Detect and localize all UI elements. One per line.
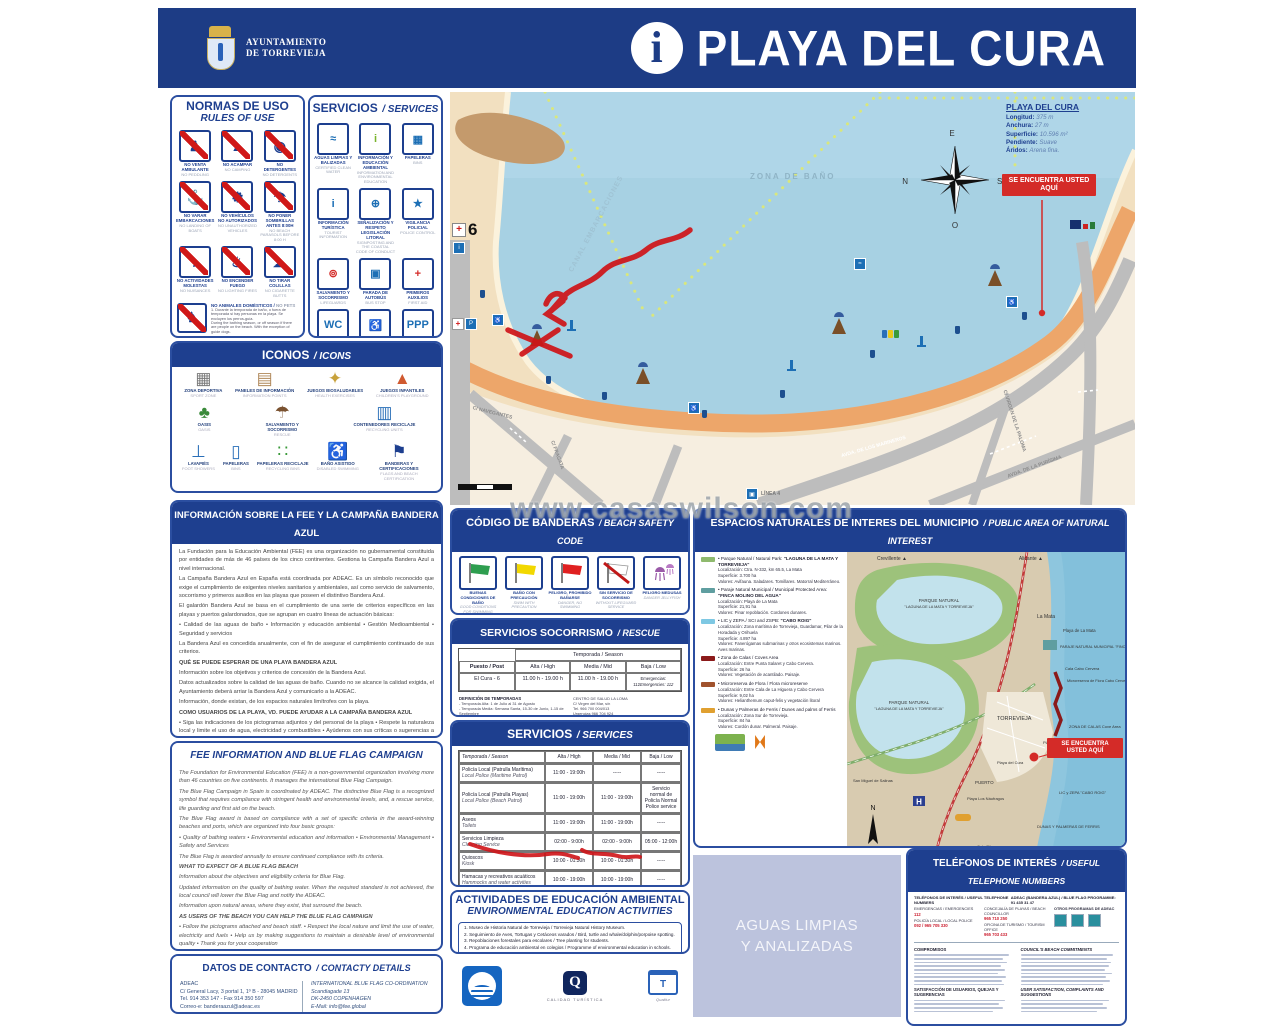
service-label-en: BUS STOP xyxy=(365,301,385,305)
flag-label-en: GOOD CONDITIONS FOR SWIMMING xyxy=(456,605,500,614)
legend-label-es: BANDERAS Y CERTIFICACIONES xyxy=(367,461,431,471)
activity-line: 5. Visitas escolares al Parque Natural /… xyxy=(464,952,676,954)
prohibition-icon: ♪ xyxy=(179,246,211,278)
activity-line: 4. Programa de educación ambiental en co… xyxy=(464,945,676,952)
prohibition-label-es: NO PONER SOMBRILLAS ANTES 8:00H xyxy=(260,214,299,229)
icons-legend-panel: ICONOS / ICONS ▦ ZONA DEPORTIVA SPORT ZO… xyxy=(170,341,443,493)
parking-map-icon: P xyxy=(465,318,477,330)
map-label: PARQUE NATURAL xyxy=(919,598,960,603)
legend-icon: ▥ xyxy=(376,404,392,421)
paragraph: Information upon natural areas, where th… xyxy=(179,902,434,910)
beach-number: 6 xyxy=(468,220,477,240)
first-aid-map-icon: + xyxy=(452,318,464,330)
map-label: DUNAS Y PALMERAS DE FERRIS xyxy=(1037,824,1100,829)
service-icon: ▦ xyxy=(402,123,434,155)
service-item: ♿ ACCESOS FÁCILES Y SEGUROS SAFE AND EAS… xyxy=(356,309,395,338)
beach-number-marker: + 6 xyxy=(452,220,477,240)
service-icon: i xyxy=(359,123,391,155)
service-item: i INFORMACIÓN TURÍSTICA TOURIST INFORMAT… xyxy=(313,188,352,254)
health-centre-line: GPS: 37°58'54"N - 0°40'29"W xyxy=(573,716,681,717)
red-flag-icon xyxy=(551,556,589,590)
paragraph: COMO USUARIOS DE LA PLAYA, VD. PUEDE AYU… xyxy=(179,709,434,717)
services-grid: ≈ AGUAS LIMPIAS Y BALIZADAS CERTIFIED CL… xyxy=(310,119,441,338)
flag-no-lifeguard: SIN SERVICIO DE SOCORRISMO WITHOUT LIFEG… xyxy=(594,556,638,614)
fee-info-en-body: The Foundation for Environmental Educati… xyxy=(172,765,441,951)
prohibition-item: ⚙ NO VEHÍCULOS NO AUTORIZADOS NO UNAUTHO… xyxy=(218,181,257,242)
services-icons-panel: SERVICIOS / SERVICES ≈ AGUAS LIMPIAS Y B… xyxy=(308,95,443,338)
lifeguard-tower-icon xyxy=(530,330,544,346)
bin-icon xyxy=(1022,312,1027,320)
municipality-name: AYUNTAMIENTO DE TORREVIEJA xyxy=(246,37,326,60)
paragraph: La Fundación para la Educación Ambiental… xyxy=(179,548,434,573)
you-are-here-badge: SE ENCUENTRA USTED AQUÍ xyxy=(1002,174,1096,196)
beach-stat: Pendiente: Suave xyxy=(1006,139,1131,147)
service-icon: ♿ xyxy=(359,309,391,338)
lifeguard-tower-icon xyxy=(988,270,1002,286)
beach-information-board: AYUNTAMIENTO DE TORREVIEJA i PLAYA DEL C… xyxy=(158,8,1136,1016)
no-pets-row: ♞ NO ANIMALES DOMÉSTICOS / NO PETS 1. Du… xyxy=(172,302,303,335)
svg-text:N: N xyxy=(870,805,875,812)
prohibition-label-en: NO LANDING OF BOATS xyxy=(175,224,214,233)
blueflag-phone: ADEAC (BANDERA AZUL) / BLUE FLAG PROGRAM… xyxy=(1011,895,1119,905)
legend-icon: ☂ xyxy=(275,404,290,421)
area-values: Valores: Avifauna. Saladares. Tomillares… xyxy=(718,579,843,585)
legend-label-en: BINS xyxy=(231,466,240,471)
greeked-text xyxy=(914,954,1013,985)
legend-item: ▲ JUEGOS INFANTILES CHILDREN'S PLAYGROUN… xyxy=(376,370,429,398)
area-color-swatch xyxy=(701,619,715,624)
col-post: Puesto / Post xyxy=(459,661,515,673)
prohibition-label-en: NO CIGARETTE BUTTS xyxy=(260,289,299,298)
service-item: PPP APARCAMIENTOS RESERVADOS RESERVED PA… xyxy=(398,309,437,338)
certification-logos: QCALIDAD TURÍSTICA TQualitur xyxy=(450,958,690,1014)
legend-icon: ▦ xyxy=(195,370,211,387)
flag-label-es: PELIGRO, PROHIBIDO BAÑARSE xyxy=(548,591,592,601)
compass-e: E xyxy=(949,129,954,138)
legend-icon: ▲ xyxy=(394,370,411,387)
rules-subtitle: RULES OF USE xyxy=(174,113,301,124)
service-item: WC ASEOS ADAPTADOS DISABLED TOILETS xyxy=(313,309,352,338)
service-item: ▣ PARADA DE AUTOBÚS BUS STOP xyxy=(356,258,395,305)
legend-item: ▯ PAPELERAS BINS xyxy=(223,443,249,481)
service-label-en: SIGNPOSTING AND THE COASTAL CODE OF COND… xyxy=(356,241,395,254)
map-label: Playa de La Mata xyxy=(1063,628,1096,633)
prohibition-item: ◉ NO DETERGENTES NO DETERGENTS xyxy=(260,130,299,177)
bathing-zone-label: ZONA DE BAÑO xyxy=(750,172,835,181)
q-calidad-label: CALIDAD TURÍSTICA xyxy=(547,997,604,1002)
other-programmes: OTROS PROGRAMAS DE ADEAC xyxy=(1054,907,1119,939)
foot-shower-icon xyxy=(790,360,793,369)
service-row: Hamacas y recreativos acuáticosHammocks … xyxy=(459,870,681,887)
services-panel-subtitle: SERVICES xyxy=(388,104,439,115)
legend-label-es: SALVAMENTO Y SOCORRISMO xyxy=(250,422,314,432)
legend-label-en: RECYCLING UNITS xyxy=(366,427,402,432)
col-mid: Media / Mid xyxy=(570,661,625,673)
paragraph: The Blue Flag award is based on complian… xyxy=(179,815,434,832)
useful-telephones-panel: TELÉFONOS DE INTERÉS / USEFUL TELEPHONE … xyxy=(906,848,1127,1026)
natural-area-item: • Parque Natural / Natural Park: "LAGUNA… xyxy=(701,556,843,584)
activity-line: 1. Museo de Historia Natural de Torrevie… xyxy=(464,925,676,932)
paragraph: The Blue Flag is awarded annually to ens… xyxy=(179,853,434,861)
legend-icon: ♿ xyxy=(327,443,348,460)
flag-jellyfish: PELIGRO MEDUSAS DANGER JELLYFISH xyxy=(640,556,684,614)
services-schedule-panel: SERVICIOS / SERVICES Temporada / Season … xyxy=(450,720,690,887)
legend-icon: ▤ xyxy=(257,370,273,387)
map-label: ZONA DE CALAS Cove Area xyxy=(1069,724,1121,729)
service-row: Policía Local (Patrulla Marítima)Local P… xyxy=(459,763,681,782)
service-label-en: INFORMATION AND ENVIRONMENTAL EDUCATION xyxy=(356,171,395,184)
area-values: Valores: Helianthemum caput-felis y vege… xyxy=(718,698,843,704)
rescue-high-hours: 11.00 h - 19.00 h xyxy=(515,673,570,691)
prohibition-item: ▲ NO ACAMPAR NO CAMPING xyxy=(218,130,257,177)
recycling-bins-icon xyxy=(882,330,899,338)
legend-label-en: FLAGS AND BEACH CERTIFICATION xyxy=(367,471,431,481)
q-calidad-logo: QCALIDAD TURÍSTICA xyxy=(547,971,604,1002)
legend-item: ✦ JUEGOS BIOSALUDABLES HEALTH EXERCISES xyxy=(307,370,363,398)
bin-icon xyxy=(480,290,485,298)
foot-shower-icon xyxy=(570,320,573,329)
activity-line: 3. Repoblaciones forestales para escolar… xyxy=(464,938,676,945)
prohibition-label-en: NO NUISANCES xyxy=(180,289,210,293)
legend-item: ☂ SALVAMENTO Y SOCORRISMO RESCUE xyxy=(250,404,314,437)
natural-area-item: • Zona de Calas / Coves Area Localizació… xyxy=(701,655,843,678)
services-schedule-subtitle: SERVICES xyxy=(582,730,633,741)
watermark: www.casaswilson.com xyxy=(510,492,853,526)
yellow-flag-icon xyxy=(505,556,543,590)
info-icon: i xyxy=(631,22,683,74)
flag-label-en: SWIM WITH PRECAUTION xyxy=(502,601,546,610)
map-label: PUERTO xyxy=(975,780,994,785)
prohibition-item: ⚓ NO VARAR EMBARCACIONES NO LANDING OF B… xyxy=(175,181,214,242)
legend-item: ▦ ZONA DEPORTIVA SPORT ZONE xyxy=(184,370,222,398)
season-def-line: - Temporada Baja: Resto del año xyxy=(459,716,567,717)
prohibition-icon: ⚙ xyxy=(221,181,253,213)
service-label-en: LIFEGUARDS xyxy=(320,301,346,305)
fee-info-es-panel: INFORMACIÓN SOBRE LA FEE Y LA CAMPAÑA BA… xyxy=(170,500,443,738)
contact-line: Scandiagade 13 xyxy=(311,989,433,997)
flag-red: PELIGRO, PROHIBIDO BAÑARSE DANGER, NO SW… xyxy=(548,556,592,614)
environmental-activities-panel: ACTIVIDADES DE EDUCACIÓN AMBIENTAL ENVIR… xyxy=(450,890,690,954)
contact-subtitle: CONTACTY DETAILS xyxy=(321,963,411,973)
rescue-subtitle: RESCUE xyxy=(622,628,660,638)
service-icon: ≈ xyxy=(317,123,349,155)
flag-label-en: WITHOUT LIFEGUARD SERVICE xyxy=(594,601,638,610)
area-values: Valores: Vegetación de acantilado. Paisa… xyxy=(718,672,843,678)
service-icon: ★ xyxy=(402,188,434,220)
buildings-icons xyxy=(1070,220,1095,229)
contact-line: Tel. 914 353 147 - Fax 914 350 597 xyxy=(180,996,302,1004)
map-label: La Mata xyxy=(1037,614,1055,620)
legend-icon: ♣ xyxy=(199,404,210,421)
flag-label-en: DANGER, NO SWIMMING xyxy=(548,601,592,610)
foot-shower-icon xyxy=(920,336,923,345)
natural-areas-list: • Parque Natural / Natural Park: "LAGUNA… xyxy=(695,552,847,848)
map-label: LIC y ZEPA "CABO ROIG" xyxy=(1059,790,1107,795)
prohibition-label-en: NO UNAUTHORIZED VEHICLES xyxy=(218,224,257,233)
first-aid-map-icon: + xyxy=(452,223,466,237)
adeac-programme-logo xyxy=(1088,914,1101,927)
prohibition-icon: ⚓ xyxy=(179,181,211,213)
paragraph: The Foundation for Environmental Educati… xyxy=(179,769,434,786)
map-label: TORREVIEJA xyxy=(997,716,1032,722)
prohibition-item: ♟ NO VENTA AMBULANTE NO PEDDLING xyxy=(175,130,214,177)
legend-item: ♿ BAÑO ASISTIDO DISABLED SWIMMING xyxy=(317,443,359,481)
service-label-en: TOURIST INFORMATION xyxy=(313,231,352,240)
paragraph: El galardón Bandera Azul se basa en el c… xyxy=(179,602,434,619)
services-schedule-table: Temporada / Season Alta / High Media / M… xyxy=(458,750,682,764)
contact-line: ADEAC xyxy=(180,981,302,989)
icons-row-3: ⊥ LAVAPIÉS FOOT SHOWERS ▯ PAPELERAS BINS… xyxy=(172,440,441,484)
health-centre-line: Urgencias 966 704 924 xyxy=(573,711,681,716)
icons-row-1: ▦ ZONA DEPORTIVA SPORT ZONE ▤ PANELES DE… xyxy=(172,367,441,401)
phone-entry: EMERGENCIAS / EMERGENCIES112 xyxy=(914,907,979,917)
prohibition-item: ☂ NO PONER SOMBRILLAS ANTES 8:00H NO BEA… xyxy=(260,181,299,242)
service-item: ⊚ SALVAMENTO Y SOCORRISMO LIFEGUARDS xyxy=(313,258,352,305)
you-are-here-badge: SE ENCUENTRA USTED AQUÍ xyxy=(1047,738,1123,758)
bin-icon xyxy=(702,410,707,418)
col-low: Baja / Low xyxy=(626,661,681,673)
legend-item: ▤ PANELES DE INFORMACIÓN INFORMATION POI… xyxy=(235,370,294,398)
contact-adeac: ADEACC/ General Lacy, 3 portal 1, 1º B -… xyxy=(180,981,302,1012)
bin-icon xyxy=(780,390,785,398)
map-label: "LAGUNA DE LA MATA Y TORREVIEJA" xyxy=(875,707,945,711)
greeked-text xyxy=(914,1000,1013,1013)
no-pets-note-en: During the bathing season, or off season… xyxy=(211,321,298,334)
legend-item: ▥ CONTENEDORES RECICLAJE RECYCLING UNITS xyxy=(354,404,416,437)
adeac-programme-logo xyxy=(1054,914,1067,927)
contact-line: C/ General Lacy, 3 portal 1, 1º B - 2804… xyxy=(180,989,302,997)
greeked-text xyxy=(1021,1000,1120,1013)
accessible-map-icon: ♿ xyxy=(492,314,504,326)
service-row: Servicios LimpiezaCleaning Service 02:00… xyxy=(459,832,681,851)
qualitur-label: Qualitur xyxy=(656,997,670,1002)
col-high: Alta / High xyxy=(545,751,593,763)
paragraph: Información, donde existan, de los espac… xyxy=(179,698,434,706)
telephones-header-line: TELÉFONOS DE INTERÉS / USEFUL TELEPHONE … xyxy=(914,895,1011,905)
map-label: "LAGUNA DE LA MATA Y TORREVIEJA" xyxy=(905,605,975,609)
area-color-swatch xyxy=(701,588,715,593)
telephones-title: TELÉFONOS DE INTERÉS xyxy=(933,858,1057,869)
area-values: Valores: Fanerógamas submarinas y otros … xyxy=(718,641,843,652)
beach-stats-box: PLAYA DEL CURA Longitud: 375 mAnchura: 2… xyxy=(1006,102,1131,156)
services-rows: Policía Local (Patrulla Marítima)Local P… xyxy=(458,763,682,887)
service-icon: + xyxy=(402,258,434,290)
service-item: ⊕ SEÑALIZACIÓN Y RESPETO LEGISLACIÓN LIT… xyxy=(356,188,395,254)
paragraph: Updated information on the quality of ba… xyxy=(179,884,434,901)
lifeguard-tower-icon xyxy=(636,368,650,384)
phone-entry: CONCEJALÍA DE PLAYAS / BEACH COUNCILLOR9… xyxy=(984,907,1049,921)
legend-item: ⊥ LAVAPIÉS FOOT SHOWERS xyxy=(182,443,215,481)
icons-subtitle: ICONS xyxy=(319,351,351,362)
area-color-swatch xyxy=(701,708,715,713)
prohibition-icon: ▲ xyxy=(221,130,253,162)
contact-line: INTERNATIONAL BLUE FLAG CO-ORDINATION xyxy=(311,981,433,989)
rescue-services-panel: SERVICIOS SOCORRISMO / RESCUE Temporada … xyxy=(450,618,690,717)
natural-area-item: • LIC y ZEPA / SCI and ZSPB: "CABO ROIG"… xyxy=(701,618,843,652)
col-high: Alta / High xyxy=(515,661,570,673)
no-pets-icon: ♞ xyxy=(177,303,207,333)
legend-label-en: DISABLED SWIMMING xyxy=(317,466,359,471)
prohibition-item: ♨ NO ENCENDER FUEGO NO LIGHTING FIRES xyxy=(218,246,257,298)
rescue-post: El Cura - 6 xyxy=(459,673,515,691)
prohibition-item: ♪ NO ACTIVIDADES MOLESTAS NO NUISANCES xyxy=(175,246,214,298)
paragraph: La Campaña Bandera Azul en España está c… xyxy=(179,575,434,600)
blue-flag-logo xyxy=(462,966,502,1006)
paragraph: La Bandera Azul es concedida anualmente,… xyxy=(179,640,434,657)
natural-parks-logo xyxy=(715,734,745,751)
prohibition-icon: ♟ xyxy=(179,130,211,162)
bin-icon xyxy=(546,376,551,384)
service-label-en: POLICE CONTROL xyxy=(400,231,435,235)
col-season: Temporada / Season xyxy=(459,751,545,763)
bin-icon xyxy=(870,350,875,358)
header-bar: AYUNTAMIENTO DE TORREVIEJA i PLAYA DEL C… xyxy=(158,8,1136,88)
flag-yellow: BAÑO CON PRECAUCIÓN SWIM WITH PRECAUTION xyxy=(502,556,546,614)
paragraph: QUÉ SE PUEDE ESPERAR DE UNA PLAYA BANDER… xyxy=(179,659,434,667)
no-pets-note-es: 1. Durante la temporada de baño, o fuera… xyxy=(211,308,298,321)
contact-details-panel: DATOS DE CONTACTO / CONTACTY DETAILS ADE… xyxy=(170,954,443,1014)
legend-icon: ⊥ xyxy=(191,443,206,460)
hospital-marker: H xyxy=(916,798,922,807)
service-row: AseosToilets 11:00 - 19:00h 11:00 - 19:0… xyxy=(459,813,681,832)
area-color-swatch xyxy=(701,656,715,661)
flag-label-es: BUENAS CONDICIONES DE BAÑO xyxy=(456,591,500,605)
service-item: ★ VIGILANCIA POLICIAL POLICE CONTROL xyxy=(398,188,437,254)
fee-info-es-body: La Fundación para la Educación Ambiental… xyxy=(172,544,441,738)
natura-2000-logo xyxy=(755,735,765,749)
prohibition-icon: ♨ xyxy=(221,246,253,278)
activity-line: 2. Seguimiento de Aves, Tortugas y Cetác… xyxy=(464,932,676,939)
greeked-text xyxy=(1021,954,1120,985)
beach-stat: Anchura: 27 m xyxy=(1006,122,1131,130)
commitments-es: COMPROMISOS SATISFACCIÓN DE USUARIOS, QU… xyxy=(914,945,1013,1014)
clean-water-notice: AGUAS LIMPIASY ANALIZADAS xyxy=(693,855,901,1017)
no-fishing-icon: Ψ xyxy=(177,336,207,338)
prohibition-label-en: NO PEDDLING xyxy=(181,173,209,177)
map-label: Playa Los Náufragos xyxy=(967,796,1004,801)
map-label: San Miguel de Salinas xyxy=(853,778,893,783)
season-def-es: DEFINICIÓN DE TEMPORADAS - Temporada Alt… xyxy=(459,696,567,717)
map-label: PARAJE NATURAL MUNICIPAL "FINCA MOLINO D… xyxy=(1060,645,1125,649)
contact-title: DATOS DE CONTACTO xyxy=(202,963,311,974)
compass-o: O xyxy=(952,221,958,230)
contact-line: E-Mail: info@fee.global xyxy=(311,1004,433,1012)
natural-area-item: • Dunas y Palmeras de Ferris / Dunes and… xyxy=(701,707,843,730)
service-item: + PRIMEROS AUXILIOS FIRST AID xyxy=(398,258,437,305)
contact-international: INTERNATIONAL BLUE FLAG CO-ORDINATIONSca… xyxy=(302,981,433,1012)
prohibition-label-en: NO CAMPING xyxy=(225,168,251,172)
adeac-programme-logo xyxy=(1071,914,1084,927)
legend-item: ♣ OASIS OASIS xyxy=(198,404,211,437)
service-icon: PPP xyxy=(402,309,434,338)
col-low: Baja / Low xyxy=(641,751,681,763)
service-icon: ▣ xyxy=(359,258,391,290)
services-schedule-title: SERVICIOS xyxy=(507,727,572,741)
rules-grid: ♟ NO VENTA AMBULANTE NO PEDDLING ▲ NO AC… xyxy=(172,126,303,302)
legend-label-en: FOOT SHOWERS xyxy=(182,466,215,471)
activities-list: 1. Museo de Historia Natural de Torrevie… xyxy=(458,922,682,954)
service-icon: i xyxy=(317,188,349,220)
area-color-swatch xyxy=(701,682,715,687)
activities-subtitle: ENVIRONMENTAL EDUCATION ACTIVITIES xyxy=(454,906,686,917)
paragraph: WHAT TO EXPECT OF A BLUE FLAG BEACH xyxy=(179,863,434,871)
paragraph: Información sobre los objetivos y criter… xyxy=(179,669,434,677)
beach-stat: Longitud: 375 m xyxy=(1006,114,1131,122)
season-header: Temporada / Season xyxy=(515,649,681,661)
phone-entry: OFICINA DE TURISMO / TOURISM OFFICE965 7… xyxy=(984,923,1049,937)
flag-label-es: SIN SERVICIO DE SOCORRISMO xyxy=(594,591,638,601)
beach-stats-title: PLAYA DEL CURA xyxy=(1006,102,1131,112)
col-mid: Media / Mid xyxy=(593,751,641,763)
rules-title: NORMAS DE USO xyxy=(174,99,301,113)
compass-n: N xyxy=(902,177,908,186)
service-row: QuioscosKiosk 10:00 - 01:30h 10:00 - 01:… xyxy=(459,851,681,870)
other-programmes-label: OTROS PROGRAMAS DE ADEAC xyxy=(1054,907,1119,912)
green-flag-icon xyxy=(459,556,497,590)
legend-item: ∷ PAPELERAS RECICLAJE RECYCLING BINS xyxy=(257,443,309,481)
no-lifeguard-flag-icon xyxy=(597,556,635,590)
service-label-es: SEÑALIZACIÓN Y RESPETO LEGISLACIÓN LITOR… xyxy=(356,221,395,241)
map-label: Cala Cabo Cervera xyxy=(1065,666,1100,671)
rescue-mid-hours: 11.00 h - 19.00 h xyxy=(570,673,625,691)
accessible-map-icon: ♿ xyxy=(688,402,700,414)
info-map-icon: i xyxy=(453,242,465,254)
rules-of-use-panel: NORMAS DE USO RULES OF USE ♟ NO VENTA AM… xyxy=(170,95,305,338)
jellyfish-icon xyxy=(643,556,681,590)
fee-info-en-panel: FEE INFORMATION AND BLUE FLAG CAMPAIGN T… xyxy=(170,741,443,951)
commitments-en: COUNCIL'S BEACH COMMITMENTS USER SATISFA… xyxy=(1021,945,1120,1014)
fee-info-es-title: INFORMACIÓN SOBRE LA FEE Y LA CAMPAÑA BA… xyxy=(174,510,438,539)
prohibition-icon: ☁ xyxy=(264,246,296,278)
area-values: Valores: Cordón dunar. Palmeral. Paisaje… xyxy=(718,724,843,730)
paragraph: Datos actualizados sobre la calidad de l… xyxy=(179,679,434,696)
beach-stat: Áridos: Arena fina. xyxy=(1006,147,1131,155)
prohibition-label-en: NO BEACH PARASOLS BEFORE 8:00 H xyxy=(260,229,299,242)
service-label-en: BINS xyxy=(413,161,422,165)
prohibition-item: ☁ NO TIRAR COLILLAS NO CIGARETTE BUTTS xyxy=(260,246,299,298)
service-label-en: FIRST AID xyxy=(408,301,427,305)
bin-icon xyxy=(602,392,607,400)
service-icon: ⊚ xyxy=(317,258,349,290)
activities-title: ACTIVIDADES DE EDUCACIÓN AMBIENTAL xyxy=(454,894,686,906)
no-fishing-label-es: PROHIBIDO PESCAR xyxy=(211,336,255,338)
prohibition-label-en: NO LIGHTING FIRES xyxy=(218,289,257,293)
legend-label-en: INFORMATION POINTS xyxy=(243,393,287,398)
paragraph: AS USERS OF THE BEACH YOU CAN HELP THE B… xyxy=(179,913,434,921)
beach-map: E S O N ZONA DE BAÑO CANAL EMBARCACIONES… xyxy=(450,92,1135,505)
area-color-swatch xyxy=(701,557,715,562)
legend-label-en: RESCUE xyxy=(274,432,291,437)
phone-column-2: CONCEJALÍA DE PLAYAS / BEACH COUNCILLOR9… xyxy=(984,907,1049,939)
map-label: PARQUE NATURAL xyxy=(889,700,930,705)
service-row: Policía Local (Patrulla Playas)Local Pol… xyxy=(459,782,681,813)
legend-label-en: OASIS xyxy=(198,427,210,432)
service-item: ≈ AGUAS LIMPIAS Y BALIZADAS CERTIFIED CL… xyxy=(313,123,352,184)
flag-label-en: DANGER JELLYFISH xyxy=(644,596,681,600)
flag-label-es: BAÑO CON PRECAUCIÓN xyxy=(502,591,546,601)
natural-area-item: • Paraje Natural Municipal / Municipal P… xyxy=(701,587,843,615)
no-fishing-row: Ψ PROHIBIDO PESCAR / FISHING PROHIBITED … xyxy=(172,335,303,338)
contact-line: Correo-e: banderaazul@adeac.es xyxy=(180,1004,302,1012)
season-def-line: - Temporada Media: Semana Santa, 15-30 d… xyxy=(459,706,567,716)
fee-info-en-title: FEE INFORMATION AND BLUE FLAG CAMPAIGN xyxy=(190,750,423,761)
beach-stat: Superficie: 10.596 m² xyxy=(1006,131,1131,139)
contact-line: DK-2450 COPENHAGEN xyxy=(311,996,433,1004)
service-icon: WC xyxy=(317,309,349,338)
service-label-es: INFORMACIÓN Y EDUCACIÓN AMBIENTAL xyxy=(356,156,395,171)
legend-label-en: CHILDREN'S PLAYGROUND xyxy=(376,393,429,398)
map-label: Playa del Cura xyxy=(997,760,1024,765)
